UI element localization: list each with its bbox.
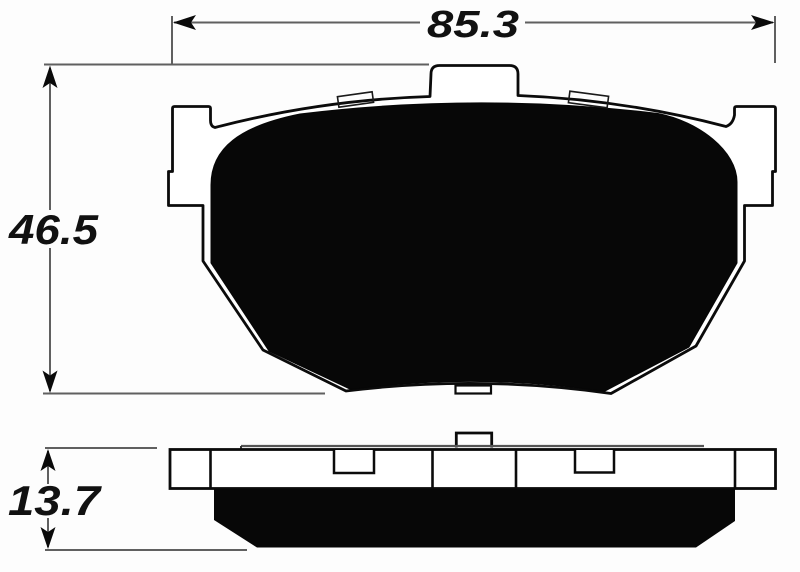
svg-text:85.3: 85.3 bbox=[427, 4, 519, 46]
svg-text:46.5: 46.5 bbox=[8, 206, 99, 253]
svg-text:13.7: 13.7 bbox=[8, 477, 102, 524]
